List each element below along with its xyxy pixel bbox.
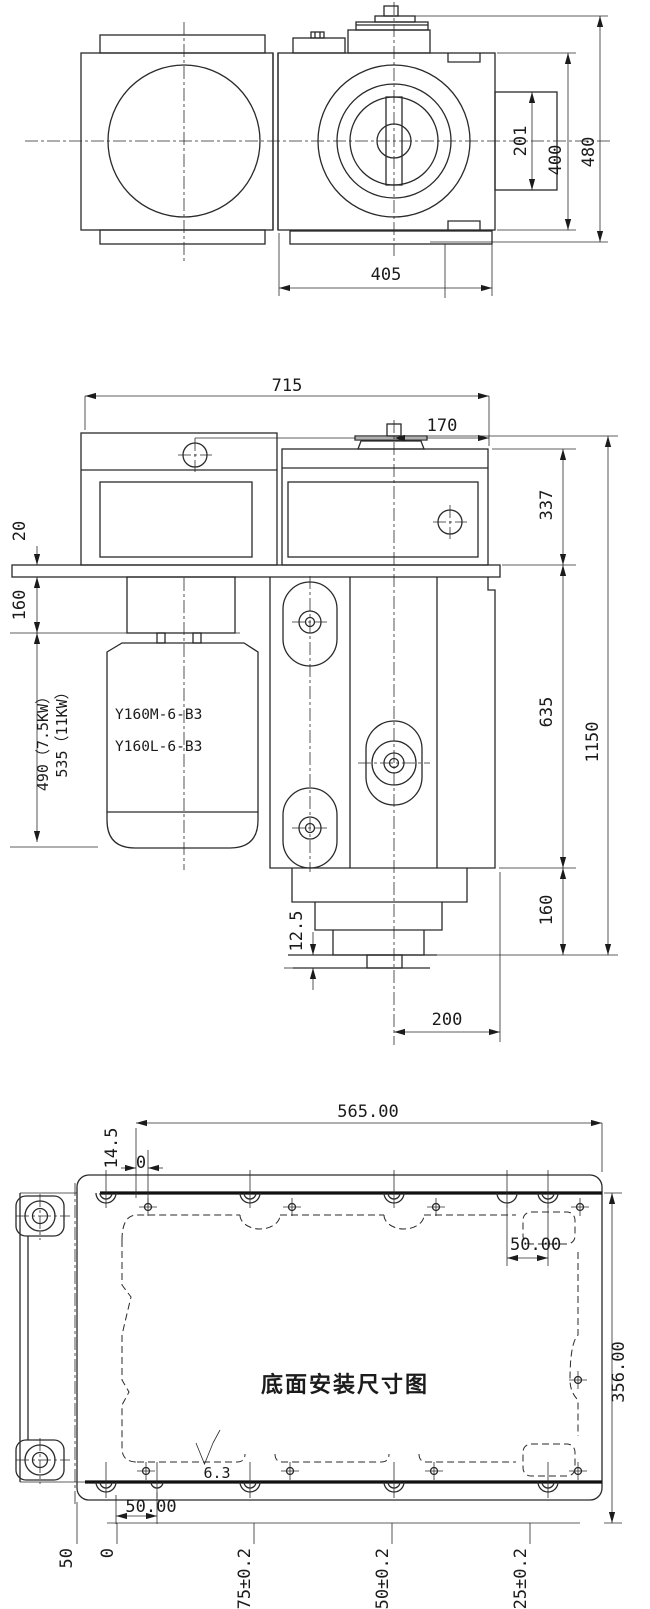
motor-model-2-label: Y160L-6-B3 [115, 739, 202, 755]
axis-525-label: 525±0.2 [511, 1548, 531, 1609]
dim-12-5-label: 12.5 [287, 911, 307, 952]
dim-405-label: 405 [371, 265, 402, 285]
dim-535-label: 535（11KW） [53, 684, 71, 777]
dim-356-label: 356.00 [609, 1341, 629, 1402]
dim-715-label: 715 [272, 376, 303, 396]
roughness-symbol [196, 1430, 220, 1464]
view-title: 底面安装尺寸图 [261, 1372, 429, 1398]
axis-50-label: 50 [57, 1548, 77, 1568]
axis-175-label: 175±0.2 [235, 1548, 255, 1609]
engineering-drawing: 201 400 480 405 [0, 0, 650, 1609]
bottom-bolt-slots [96, 1462, 558, 1498]
dim-200-label: 200 [432, 1010, 463, 1030]
dim-160-right-label: 160 [537, 895, 557, 926]
dim-635-label: 635 [537, 697, 557, 728]
dim-337-label: 337 [537, 490, 557, 521]
dim-1150-label: 1150 [583, 722, 603, 763]
dim-14-5-label: 14.5 [102, 1128, 122, 1169]
bottom-view: 底面安装尺寸图 6.3 565.00 14.5 0 50.00 356.00 5… [16, 1102, 629, 1609]
dim-160-left-label: 160 [10, 590, 30, 621]
front-view: Y160M-6-B3 Y160L-6-B3 715 [10, 376, 618, 1045]
axis-0-label: 0 [98, 1548, 118, 1558]
top-view: 201 400 480 405 [25, 2, 612, 298]
axis-350-label: 350±0.2 [373, 1548, 393, 1609]
dim-201-label: 201 [511, 126, 531, 157]
dim-0-top-label: 0 [136, 1153, 146, 1173]
motor-model-1-label: Y160M-6-B3 [115, 707, 202, 723]
dim-400-label: 400 [546, 145, 566, 176]
dim-50-top-right-label: 50.00 [510, 1235, 561, 1255]
top-bolt-slots [96, 1170, 558, 1208]
dim-50-bottom-label: 50.00 [125, 1497, 176, 1517]
drawing-sheet: 201 400 480 405 [0, 0, 650, 1609]
roughness-value: 6.3 [203, 1464, 230, 1482]
dim-20-label: 20 [10, 521, 30, 541]
dim-170-label: 170 [427, 416, 458, 436]
dim-480-label: 480 [579, 137, 599, 168]
dim-490-label: 490（7.5KW） [34, 689, 52, 791]
dim-565-label: 565.00 [337, 1102, 398, 1122]
